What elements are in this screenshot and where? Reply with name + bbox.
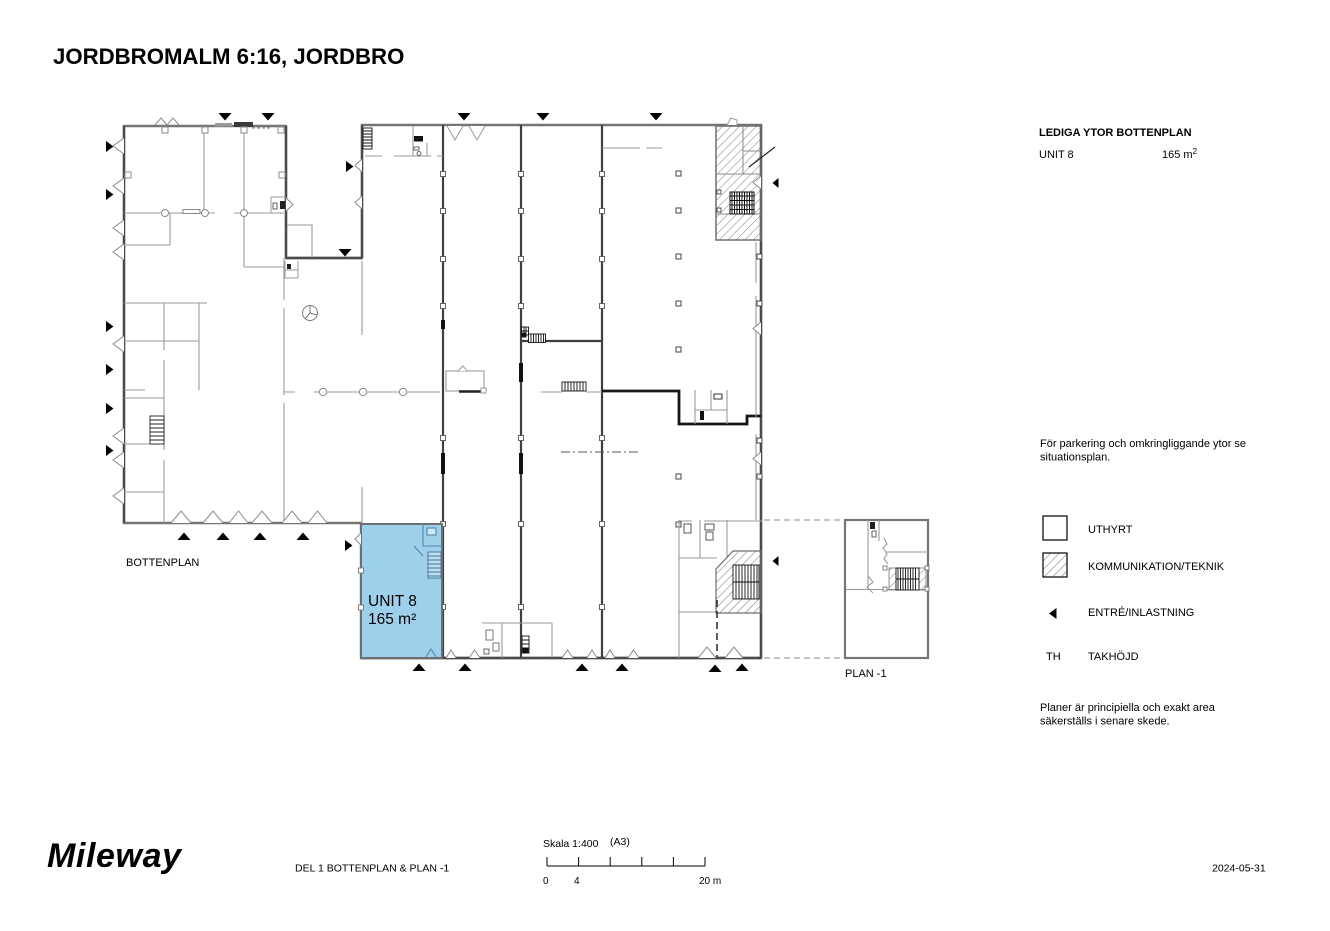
svg-text:ENTRÉ/INLASTNING: ENTRÉ/INLASTNING bbox=[1088, 606, 1194, 619]
svg-text:Skala 1:400: Skala 1:400 bbox=[543, 838, 599, 850]
svg-text:TAKHÖJD: TAKHÖJD bbox=[1088, 651, 1139, 663]
svg-text:Planer är principiella och exa: Planer är principiella och exakt area bbox=[1040, 702, 1216, 714]
svg-text:För parkering och omkringligga: För parkering och omkringliggande ytor s… bbox=[1040, 438, 1246, 450]
svg-text:4: 4 bbox=[574, 876, 580, 887]
svg-text:TH: TH bbox=[1046, 651, 1061, 663]
svg-text:KOMMUNIKATION/TEKNIK: KOMMUNIKATION/TEKNIK bbox=[1088, 561, 1225, 573]
svg-text:(A3): (A3) bbox=[610, 836, 630, 848]
svg-text:säkerställs i senare skede.: säkerställs i senare skede. bbox=[1040, 716, 1170, 728]
svg-text:2024-05-31: 2024-05-31 bbox=[1212, 863, 1266, 875]
svg-text:UTHYRT: UTHYRT bbox=[1088, 524, 1133, 536]
svg-text:UNIT 8: UNIT 8 bbox=[368, 593, 417, 610]
svg-text:PLAN -1: PLAN -1 bbox=[845, 668, 887, 680]
svg-text:JORDBROMALM 6:16, JORDBRO: JORDBROMALM 6:16, JORDBRO bbox=[53, 44, 404, 69]
svg-text:165 m2: 165 m2 bbox=[1162, 147, 1198, 161]
svg-text:situationsplan.: situationsplan. bbox=[1040, 452, 1110, 464]
svg-text:DEL 1 BOTTENPLAN & PLAN -1: DEL 1 BOTTENPLAN & PLAN -1 bbox=[295, 863, 449, 875]
svg-text:BOTTENPLAN: BOTTENPLAN bbox=[126, 557, 199, 569]
svg-text:UNIT 8: UNIT 8 bbox=[1039, 149, 1074, 161]
svg-text:165 m²: 165 m² bbox=[368, 611, 416, 628]
svg-text:LEDIGA YTOR BOTTENPLAN: LEDIGA YTOR BOTTENPLAN bbox=[1039, 127, 1192, 139]
svg-text:20 m: 20 m bbox=[699, 876, 721, 887]
svg-text:0: 0 bbox=[543, 876, 549, 887]
svg-text:Mileway: Mileway bbox=[47, 837, 183, 875]
